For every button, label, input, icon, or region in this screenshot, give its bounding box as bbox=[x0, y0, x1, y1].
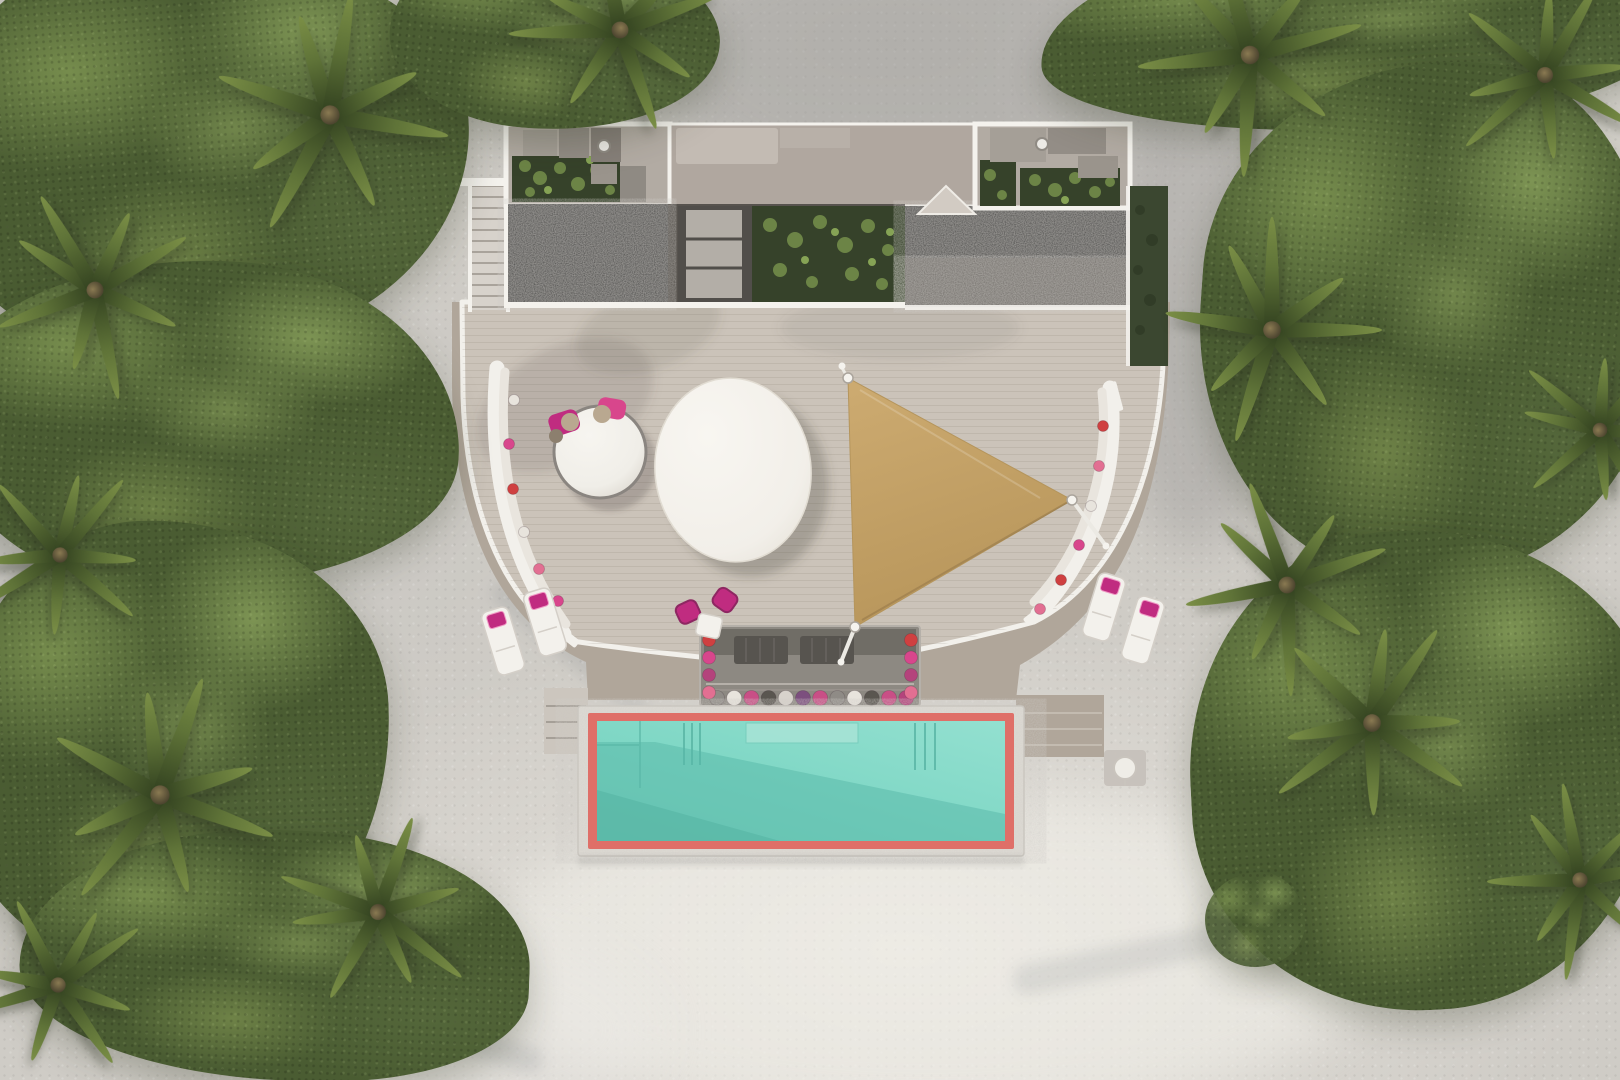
sun-lounger bbox=[480, 605, 526, 676]
outdoor-shower-head bbox=[598, 140, 610, 152]
sail-post bbox=[850, 622, 860, 632]
pillow bbox=[1056, 575, 1067, 586]
pillow bbox=[703, 669, 716, 682]
pillow bbox=[882, 691, 897, 706]
pillow bbox=[761, 691, 776, 706]
roof-sofa-block bbox=[780, 128, 850, 148]
outdoor-shower-base bbox=[1114, 757, 1136, 779]
sail-anchor bbox=[839, 363, 846, 370]
pillow bbox=[905, 686, 918, 699]
pillow bbox=[847, 691, 862, 706]
sail-anchor bbox=[1103, 543, 1110, 550]
right-roof-garden-small bbox=[980, 160, 1016, 206]
roof-sofa-block bbox=[676, 128, 778, 164]
pillow bbox=[509, 395, 520, 406]
pool bbox=[578, 706, 1024, 866]
pillow bbox=[905, 669, 918, 682]
pillow bbox=[508, 484, 519, 495]
lounge-mat bbox=[734, 636, 788, 664]
pillow bbox=[813, 691, 828, 706]
gravel-roof-left bbox=[506, 204, 668, 305]
sail-anchor bbox=[838, 659, 845, 666]
pillow bbox=[504, 439, 515, 450]
pillow bbox=[727, 691, 742, 706]
skylight-panes bbox=[686, 210, 742, 298]
sail-post bbox=[843, 373, 853, 383]
daybed-pillow-tan bbox=[549, 429, 563, 443]
vegetation-bush-small bbox=[1205, 872, 1305, 967]
gravel-roof-right-light bbox=[905, 258, 1130, 307]
pillow bbox=[534, 564, 545, 575]
pillow bbox=[778, 691, 793, 706]
gravel-left-wall bbox=[504, 204, 508, 305]
pillow bbox=[830, 691, 845, 706]
grass-roof-strip bbox=[1130, 186, 1168, 366]
building-base-wall bbox=[905, 305, 1132, 310]
pillow bbox=[1094, 461, 1105, 472]
sunken-lounge bbox=[700, 626, 920, 706]
stair-treads bbox=[472, 186, 508, 310]
grass-strip-wall bbox=[1126, 186, 1130, 366]
pillow bbox=[1098, 421, 1109, 432]
pool-steps-right bbox=[1016, 695, 1104, 757]
stair-rail-left bbox=[468, 178, 472, 312]
pillow bbox=[864, 691, 879, 706]
pillow bbox=[703, 651, 716, 664]
pool-outer-shadow bbox=[578, 856, 1024, 866]
pillow bbox=[519, 527, 530, 538]
outdoor-shower-head bbox=[1036, 138, 1048, 150]
sun-lounger bbox=[1120, 594, 1166, 665]
pillow bbox=[1074, 540, 1085, 551]
aerial-villa-scene bbox=[0, 0, 1620, 1080]
submerged-bench bbox=[746, 723, 858, 743]
pillow bbox=[1035, 604, 1046, 615]
daybed-pillow-tan bbox=[593, 405, 611, 423]
pillow bbox=[703, 686, 716, 699]
pillow bbox=[1086, 501, 1097, 512]
sail-post bbox=[1067, 495, 1077, 505]
pillow bbox=[905, 651, 918, 664]
daybed-pillow-tan bbox=[561, 413, 579, 431]
patio-table bbox=[695, 613, 723, 640]
pillow bbox=[905, 634, 918, 647]
building-base-wall bbox=[504, 302, 905, 308]
pillow bbox=[796, 691, 811, 706]
pillow bbox=[744, 691, 759, 706]
